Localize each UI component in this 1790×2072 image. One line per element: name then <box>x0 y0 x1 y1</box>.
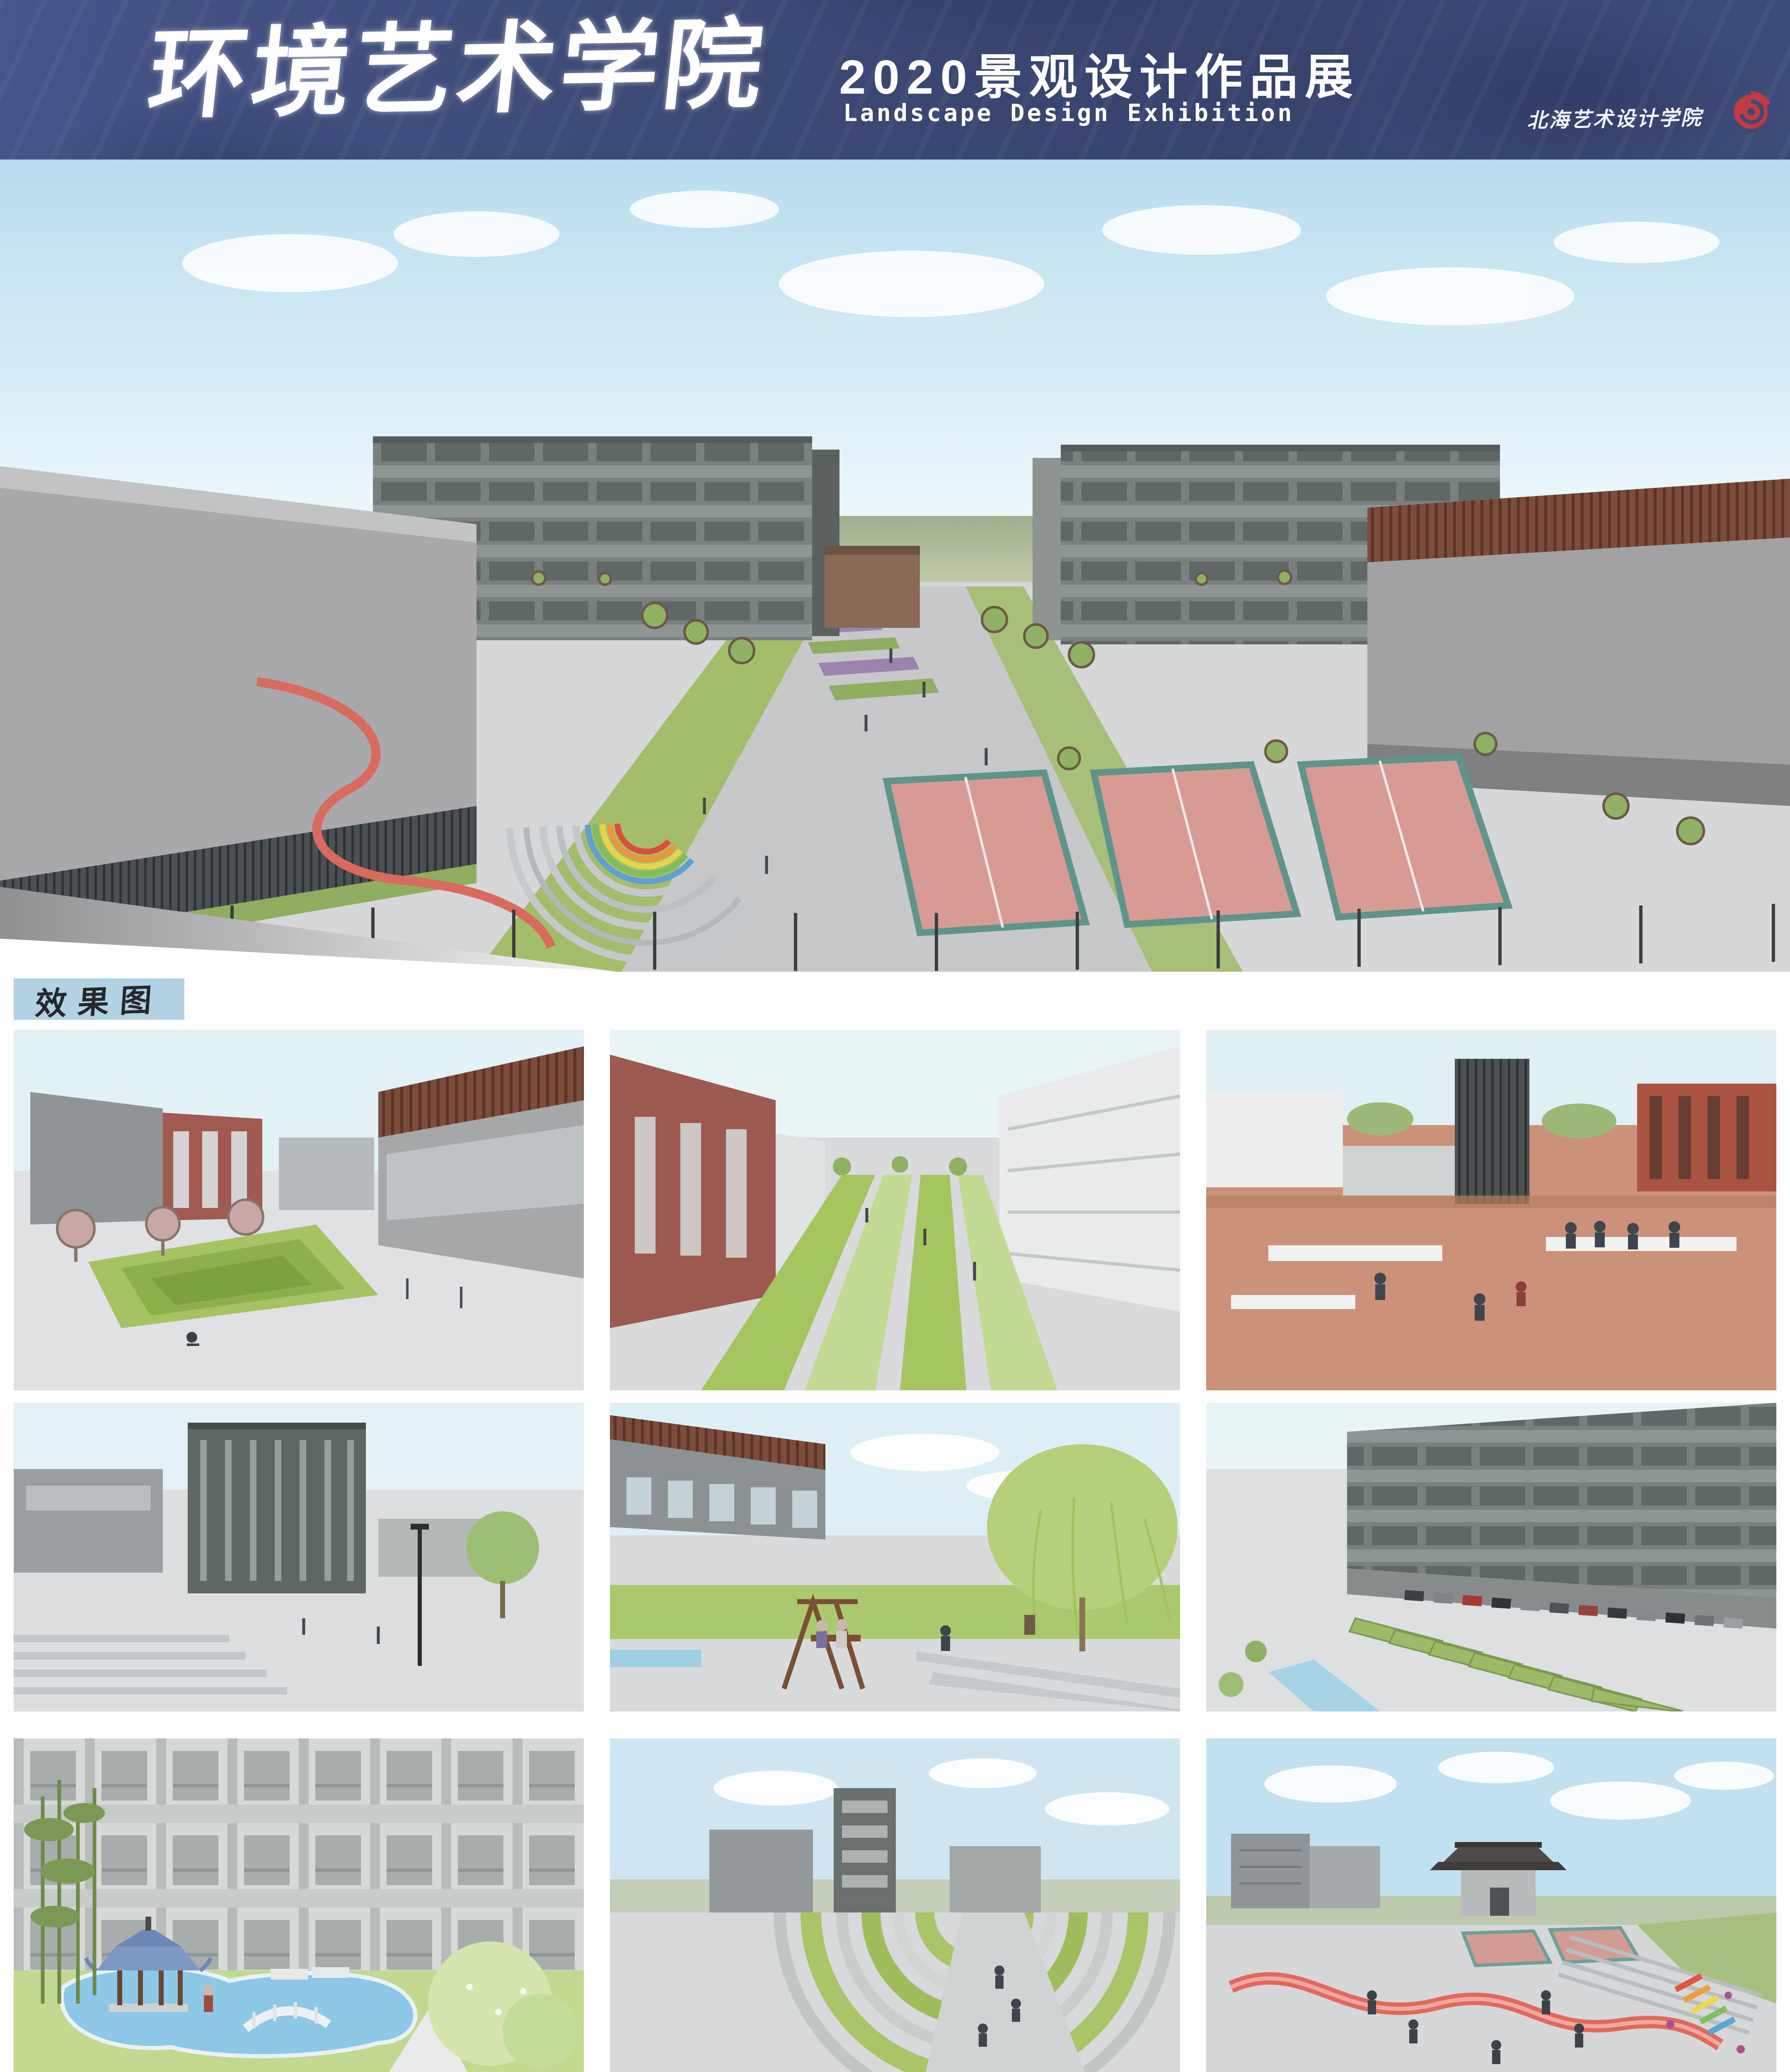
rendering-image-axis-courtyard <box>610 1030 1180 1390</box>
rendering-image-sunken-plaza <box>1206 1030 1776 1390</box>
school-name-calligraphy: 北海艺术设计学院 <box>1526 101 1703 133</box>
rendering-image-swing-garden <box>610 1403 1180 1711</box>
rendering-image-terraced-lawn <box>610 1738 1180 2072</box>
exhibition-poster: { "header": { "title": "环境艺术学院", "subtit… <box>0 0 1790 2072</box>
rendering-image-courtyard-pond-pavilion <box>14 1738 584 2072</box>
rendering-image-gate-plaza-rainbow <box>1206 1738 1776 2072</box>
renderings-grid-row-1 <box>14 1030 1776 1390</box>
section-label-renderings-text: 效果图 <box>34 974 164 1024</box>
subtitle-cn: 2020景观设计作品展 <box>839 38 1360 108</box>
renderings-grid-row-3 <box>14 1738 1776 2072</box>
school-swirl-logo-icon <box>1727 88 1775 136</box>
rendering-image-parking-terraces <box>1206 1403 1776 1711</box>
subtitle-en: Landscape Design Exhibition <box>843 99 1294 127</box>
hero-campus-rendering <box>0 160 1790 972</box>
rendering-image-dark-tower-steps <box>14 1403 584 1711</box>
rendering-image-corner-plaza <box>14 1030 584 1390</box>
renderings-grid-row-2 <box>14 1403 1776 1711</box>
header-band: 环境艺术学院 2020景观设计作品展 Landscape Design Exhi… <box>0 0 1790 160</box>
page-title: 环境艺术学院 <box>143 16 801 126</box>
section-label-renderings: 效果图 <box>14 978 184 1020</box>
